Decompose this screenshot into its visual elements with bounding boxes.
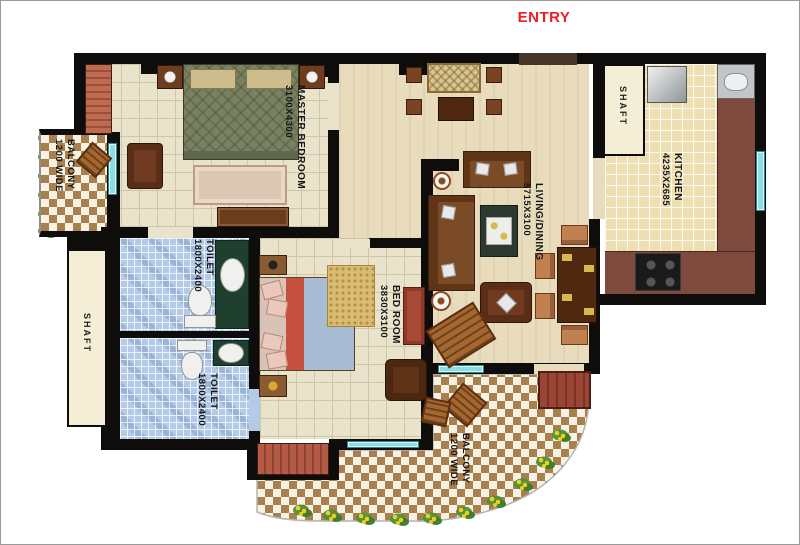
room-dims: 1800X2400 <box>191 239 203 292</box>
room-name: LIVING/DINING <box>532 183 544 261</box>
room-dims: 4235X2685 <box>659 153 671 206</box>
room-label-toilet-lower: TOILET 1800X2400 <box>195 373 219 426</box>
room-dims: 5715X3100 <box>520 183 532 261</box>
room-name: MASTER BEDROOM <box>294 85 306 189</box>
room-name: KITCHEN <box>671 153 683 206</box>
room-dims: 3100X4300 <box>282 85 294 189</box>
room-label-living-dining: LIVING/DINING 5715X3100 <box>520 183 544 261</box>
room-label-balcony-left: BALCONY 1200 WIDE <box>52 139 76 192</box>
room-label-kitchen: KITCHEN 4235X2685 <box>659 153 683 206</box>
room-name: BED ROOM <box>389 285 401 344</box>
room-name: TOILET <box>207 373 219 426</box>
room-name: BALCONY <box>64 139 76 192</box>
room-label-master-bedroom: MASTER BEDROOM 3100X4300 <box>282 85 306 189</box>
room-name: TOILET <box>203 239 215 292</box>
room-dims: 3830X3100 <box>377 285 389 344</box>
room-dims: 1200 WIDE <box>447 433 459 486</box>
room-label-bedroom: BED ROOM 3830X3100 <box>377 285 401 344</box>
room-dims: 1200 WIDE <box>52 139 64 192</box>
room-label-shaft-left: SHAFT <box>82 313 92 353</box>
labels-layer: ENTRY MASTER BEDROOM 3100X4300 BED ROOM … <box>1 1 800 545</box>
room-label-balcony-bottom: BALCONY 1200 WIDE <box>447 433 471 486</box>
room-label-shaft-right: SHAFT <box>618 86 628 126</box>
room-dims: 1800X2400 <box>195 373 207 426</box>
entry-label: ENTRY <box>509 9 579 26</box>
room-label-toilet-upper: TOILET 1800X2400 <box>191 239 215 292</box>
room-name: BALCONY <box>459 433 471 486</box>
floor-plan: ENTRY MASTER BEDROOM 3100X4300 BED ROOM … <box>0 0 800 545</box>
